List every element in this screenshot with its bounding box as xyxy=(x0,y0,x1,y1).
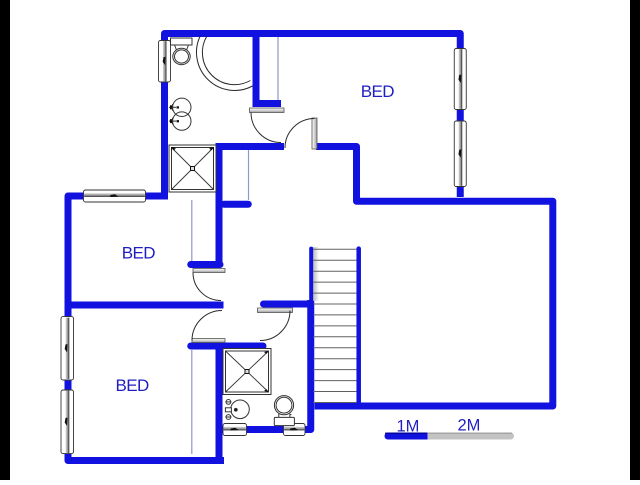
svg-text:BED: BED xyxy=(122,244,155,263)
svg-text:BED: BED xyxy=(361,82,394,101)
svg-text:1M: 1M xyxy=(397,418,420,436)
svg-text:2M: 2M xyxy=(458,417,481,435)
svg-text:BED: BED xyxy=(116,376,149,395)
